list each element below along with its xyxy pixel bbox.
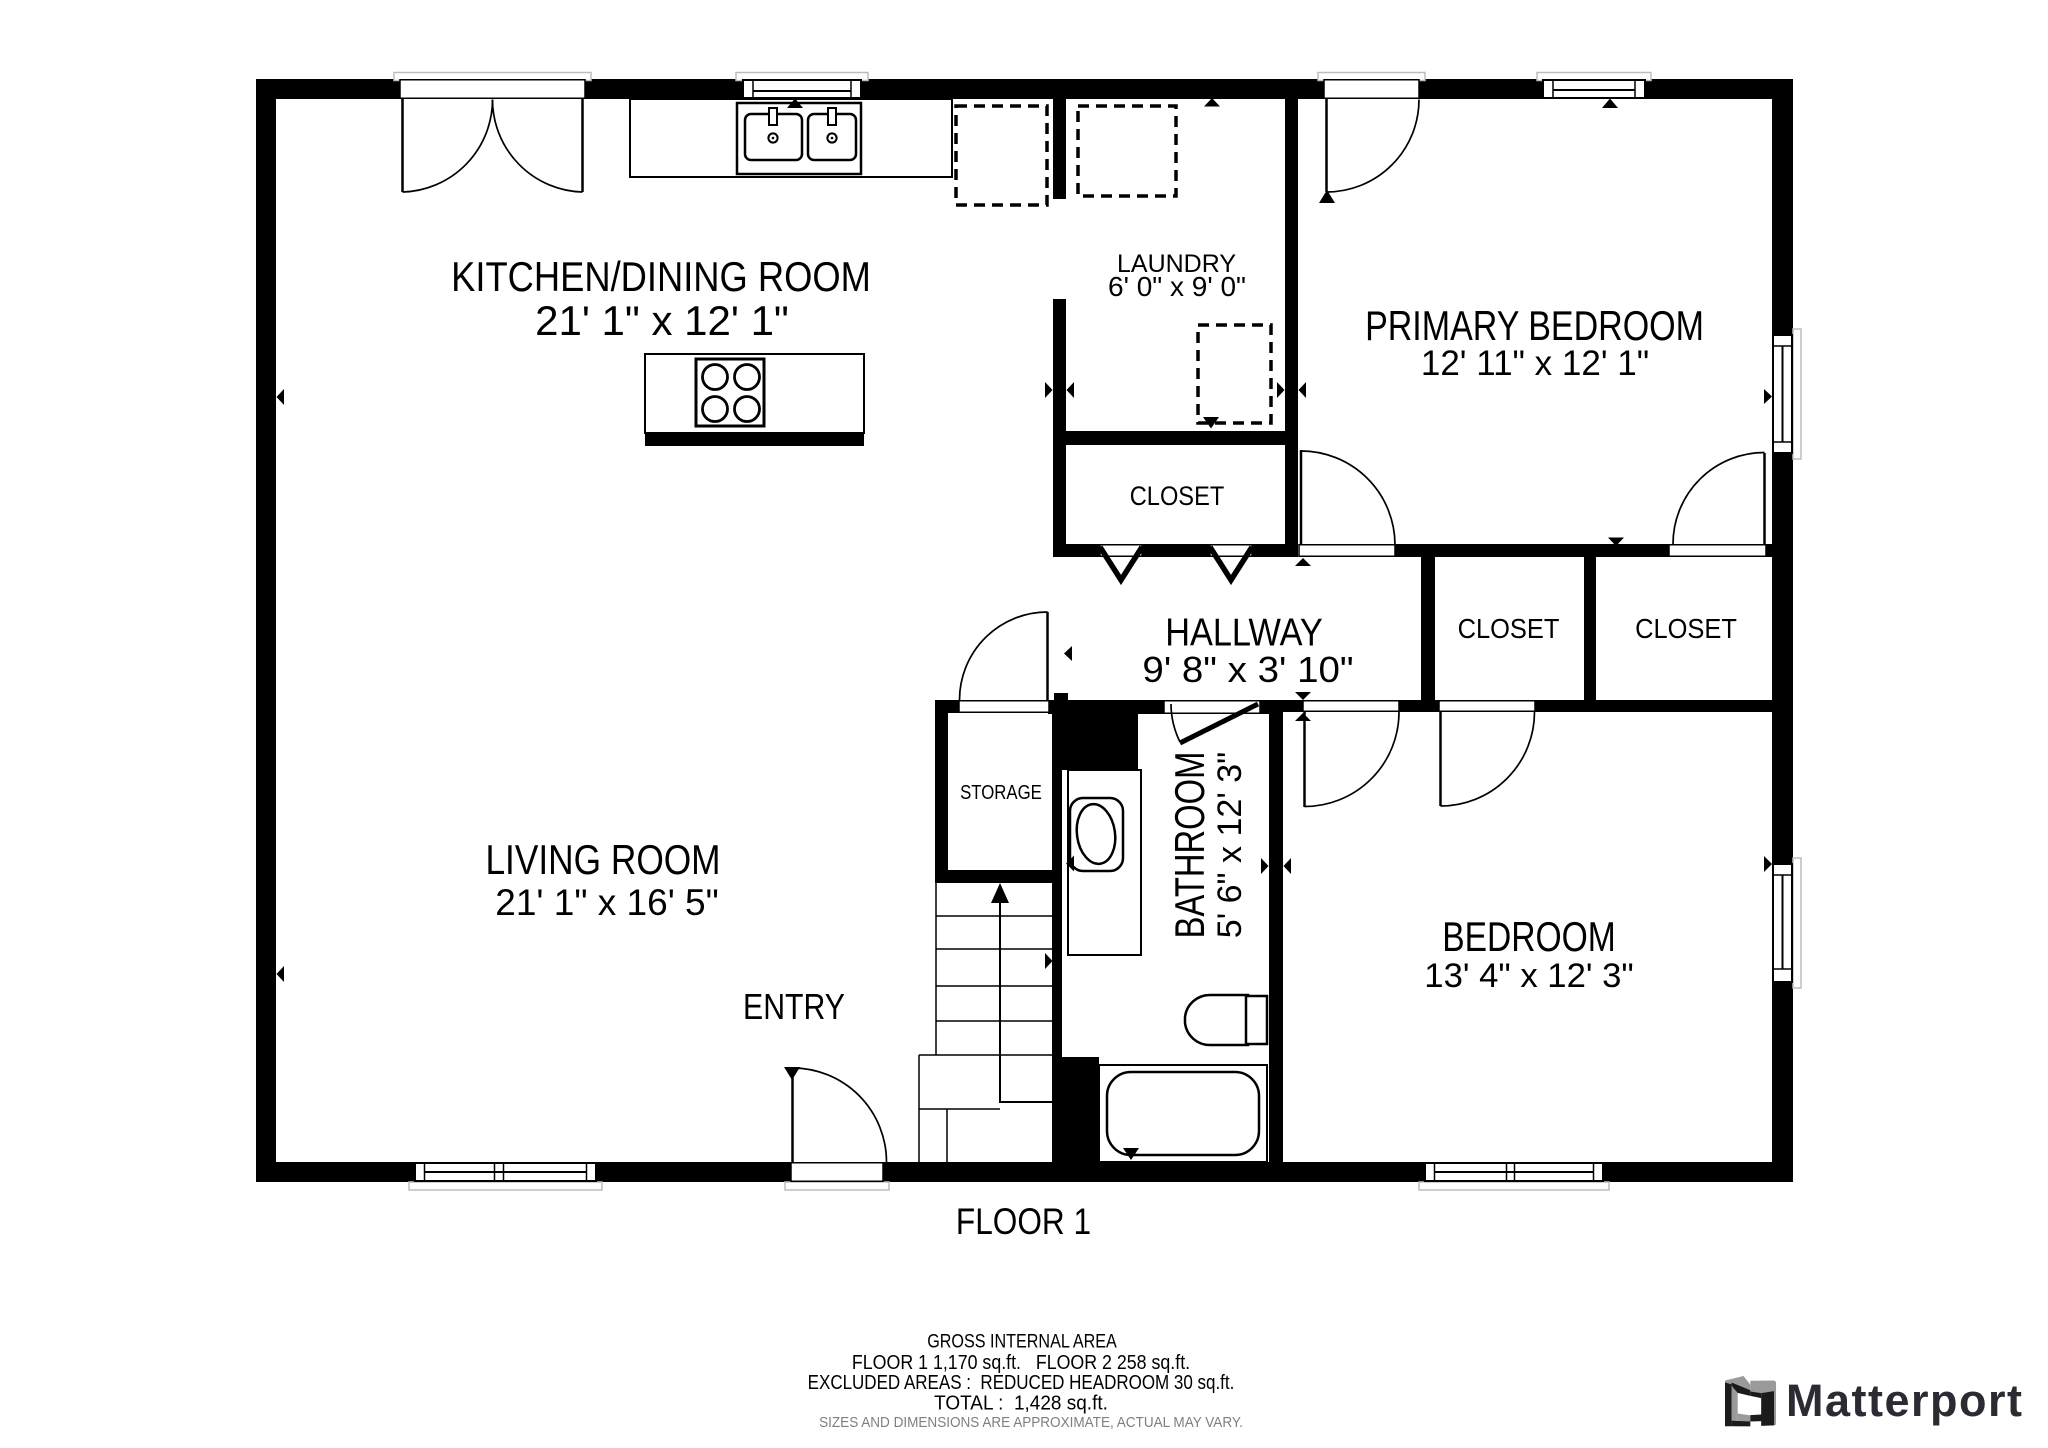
svg-text:PRIMARY BEDROOM: PRIMARY BEDROOM bbox=[1365, 303, 1704, 350]
svg-text:ENTRY: ENTRY bbox=[743, 988, 845, 1028]
svg-text:5' 6" x 12' 3": 5' 6" x 12' 3" bbox=[1211, 752, 1249, 938]
svg-text:CLOSET: CLOSET bbox=[1130, 482, 1224, 512]
svg-text:HALLWAY: HALLWAY bbox=[1165, 610, 1323, 654]
svg-text:21' 1" x 16' 5": 21' 1" x 16' 5" bbox=[495, 882, 718, 923]
svg-text:LIVING ROOM: LIVING ROOM bbox=[485, 837, 720, 884]
svg-text:21' 1" x 12' 1": 21' 1" x 12' 1" bbox=[535, 297, 789, 344]
svg-text:FLOOR 1: FLOOR 1 bbox=[956, 1202, 1091, 1243]
svg-text:9' 8" x 3' 10": 9' 8" x 3' 10" bbox=[1142, 649, 1353, 690]
svg-text:BATHROOM: BATHROOM bbox=[1166, 752, 1213, 939]
svg-text:SIZES AND DIMENSIONS ARE APPRO: SIZES AND DIMENSIONS ARE APPROXIMATE, AC… bbox=[819, 1414, 1243, 1431]
svg-text:13' 4" x 12' 3": 13' 4" x 12' 3" bbox=[1424, 957, 1633, 995]
svg-text:BEDROOM: BEDROOM bbox=[1442, 915, 1616, 961]
svg-text:Matterport: Matterport bbox=[1786, 1375, 2024, 1426]
svg-text:EXCLUDED AREAS : REDUCED HEAD: EXCLUDED AREAS : REDUCED HEADROOM 30 sq.… bbox=[808, 1371, 1235, 1394]
svg-text:CLOSET: CLOSET bbox=[1458, 613, 1560, 644]
svg-text:TOTAL : 1,428 sq.ft.: TOTAL : 1,428 sq.ft. bbox=[934, 1392, 1108, 1415]
svg-text:CLOSET: CLOSET bbox=[1635, 613, 1737, 644]
svg-text:GROSS INTERNAL AREA: GROSS INTERNAL AREA bbox=[927, 1330, 1117, 1352]
svg-text:KITCHEN/DINING ROOM: KITCHEN/DINING ROOM bbox=[451, 254, 871, 301]
svg-text:STORAGE: STORAGE bbox=[960, 781, 1042, 804]
svg-text:6' 0" x 9' 0": 6' 0" x 9' 0" bbox=[1108, 271, 1246, 302]
svg-text:12' 11" x 12' 1": 12' 11" x 12' 1" bbox=[1421, 344, 1649, 383]
